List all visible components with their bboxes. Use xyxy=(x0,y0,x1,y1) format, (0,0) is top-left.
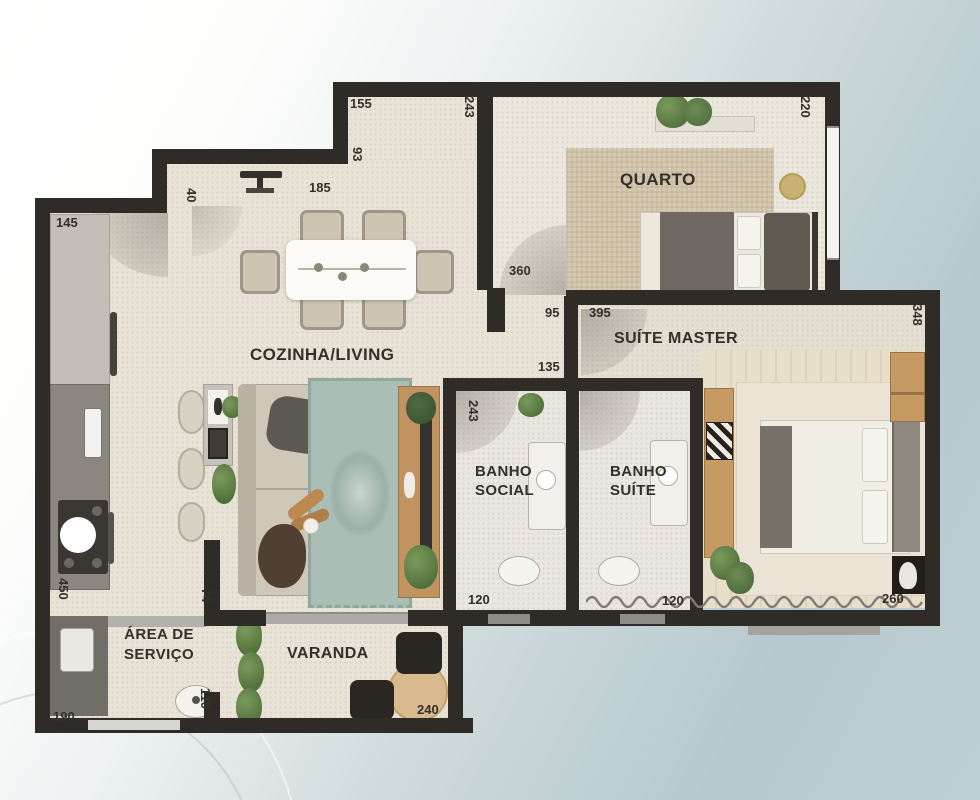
rug-medallion xyxy=(330,450,390,536)
dim-120-suite: 120 xyxy=(662,594,684,608)
kitchen-counter-upper xyxy=(50,214,110,386)
wall-segment xyxy=(204,610,266,626)
plant-quarto xyxy=(684,98,712,126)
console-vase xyxy=(404,472,415,498)
dim-220: 220 xyxy=(798,96,812,118)
vent-banho-suite xyxy=(620,614,665,624)
varanda-chair xyxy=(350,680,394,720)
dim-260: 260 xyxy=(882,592,904,606)
label-line: BANHO xyxy=(610,462,667,481)
room-label-banho-suite: BANHO SUÍTE xyxy=(610,462,667,500)
window-servico xyxy=(88,720,180,730)
plant-varanda xyxy=(238,652,264,692)
wardrobe-shelf-line xyxy=(890,392,925,395)
floor-plan: COZINHA/LIVING QUARTO SUÍTE MASTER BANHO… xyxy=(0,0,980,800)
dim-360: 360 xyxy=(509,264,531,278)
dim-135: 135 xyxy=(538,360,560,374)
wall-segment xyxy=(152,149,348,164)
suite-desk xyxy=(704,388,734,558)
dining-table xyxy=(286,240,416,300)
wall-segment xyxy=(448,610,463,733)
dining-chair xyxy=(240,250,280,294)
wall-segment xyxy=(566,290,836,305)
burner xyxy=(92,506,102,516)
basin-social xyxy=(536,470,556,490)
wall-segment xyxy=(564,296,578,391)
room-label-varanda: VARANDA xyxy=(287,645,369,663)
dim-348: 348 xyxy=(910,304,924,326)
room-label-banho-social: BANHO SOCIAL xyxy=(475,462,534,500)
washer xyxy=(60,628,94,672)
suite-chair-pattern xyxy=(706,422,733,460)
plant-living xyxy=(212,464,236,504)
burner xyxy=(64,558,74,568)
wall-segment xyxy=(35,198,50,733)
dim-450: 450 xyxy=(56,578,70,600)
pillow xyxy=(862,490,888,544)
sofa-back xyxy=(238,384,256,596)
table-decor xyxy=(338,272,347,281)
sliding-door xyxy=(266,612,408,624)
dim-110: 110 xyxy=(198,688,212,709)
pot xyxy=(60,517,96,553)
label-line: ÁREA DE xyxy=(113,625,205,645)
dim-145: 145 xyxy=(56,216,78,230)
wardrobe xyxy=(890,352,925,422)
dim-240: 240 xyxy=(417,703,439,717)
vent-banho-social xyxy=(488,614,530,624)
room-label-quarto: QUARTO xyxy=(620,170,696,190)
label-line: SUÍTE xyxy=(610,481,667,500)
tv-wall xyxy=(240,171,282,178)
tv-base xyxy=(246,188,274,193)
stool xyxy=(178,448,205,490)
plant-console-bottom xyxy=(404,545,438,589)
balcony-ledge xyxy=(748,626,880,635)
bed-blanket xyxy=(660,212,734,292)
bed-dark-pillows xyxy=(764,213,810,291)
dim-74: 74 xyxy=(199,588,213,602)
dim-40: 40 xyxy=(184,188,198,202)
label-line: SERVIÇO xyxy=(113,645,205,665)
dim-190: 190 xyxy=(53,710,75,724)
dim-243-top: 243 xyxy=(462,96,476,118)
label-line: BANHO xyxy=(475,462,534,481)
wall-segment xyxy=(35,198,167,213)
table-decor xyxy=(314,263,323,272)
counter-edge xyxy=(110,312,117,376)
toilet-social xyxy=(498,556,540,586)
room-label-suite: SUÍTE MASTER xyxy=(614,330,738,348)
dining-chair xyxy=(414,250,454,294)
stool xyxy=(178,502,205,542)
room-label-cozinha: COZINHA/LIVING xyxy=(250,345,394,365)
vase xyxy=(214,398,222,415)
kitchen-sink xyxy=(84,408,102,458)
window-quarto xyxy=(827,126,839,260)
pillow xyxy=(737,254,761,288)
wall-segment xyxy=(443,378,456,618)
dim-185: 185 xyxy=(309,181,331,195)
console-tv xyxy=(420,418,432,558)
dim-243-banho: 243 xyxy=(466,400,480,422)
bed-headboard xyxy=(812,212,818,292)
wall-segment xyxy=(477,82,493,290)
plant-console-top xyxy=(406,392,436,424)
stool xyxy=(178,390,205,434)
dim-395: 395 xyxy=(589,306,611,320)
pillow xyxy=(862,428,888,482)
label-line: SOCIAL xyxy=(475,481,534,500)
room-label-area-servico: ÁREA DE SERVIÇO xyxy=(113,625,205,665)
wall-segment xyxy=(925,290,940,622)
curtain-squiggle xyxy=(586,590,930,608)
wall-segment xyxy=(333,82,840,97)
plant-banho-social xyxy=(518,393,544,417)
wall-segment xyxy=(690,378,703,618)
wall-segment xyxy=(566,378,579,618)
person-item xyxy=(303,518,319,534)
wall-segment xyxy=(825,290,940,305)
dim-93: 93 xyxy=(350,147,364,161)
suite-headboard xyxy=(892,422,920,552)
varanda-chair xyxy=(396,632,442,674)
wall-segment xyxy=(487,288,505,332)
tv-stand xyxy=(257,178,263,188)
pillow xyxy=(737,216,761,250)
person-body xyxy=(258,524,306,588)
dim-155: 155 xyxy=(350,97,372,111)
dim-95: 95 xyxy=(545,306,559,320)
bed-foot-bench xyxy=(760,426,792,548)
stool-round xyxy=(779,173,806,200)
bw-art xyxy=(208,428,228,459)
burner xyxy=(92,558,102,568)
toilet-suite xyxy=(598,556,640,586)
floor-art-figure xyxy=(899,562,917,589)
table-decor xyxy=(360,263,369,272)
oven-handle xyxy=(108,512,114,564)
dim-120-social: 120 xyxy=(468,593,490,607)
